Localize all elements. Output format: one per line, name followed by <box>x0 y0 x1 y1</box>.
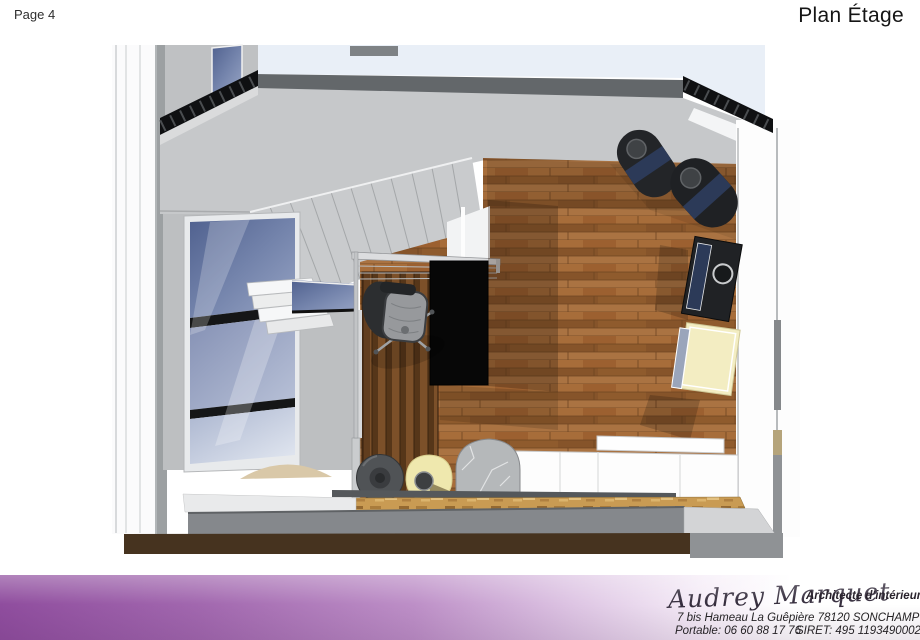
address-line: 7 bis Hameau La Guêpière 78120 SONCHAMP <box>677 612 919 624</box>
phone-line: Portable: 06 60 88 17 76 <box>675 625 801 637</box>
document-page: Page 4 Plan Étage <box>0 0 920 640</box>
floor-plan-rendering <box>0 0 920 640</box>
left-wall-section <box>112 45 167 534</box>
floor-slab-section <box>124 490 783 558</box>
window-wall <box>184 212 300 472</box>
footer-band: Audrey Marquet Architecte d'intérieur 7 … <box>0 575 920 640</box>
right-wall-section <box>736 120 800 537</box>
architect-role: Architecte d'intérieur <box>806 590 920 602</box>
siret-line: SIRET: 495 11934900027 <box>796 625 920 637</box>
box-speaker <box>655 236 742 321</box>
marble-pouf <box>456 439 520 498</box>
